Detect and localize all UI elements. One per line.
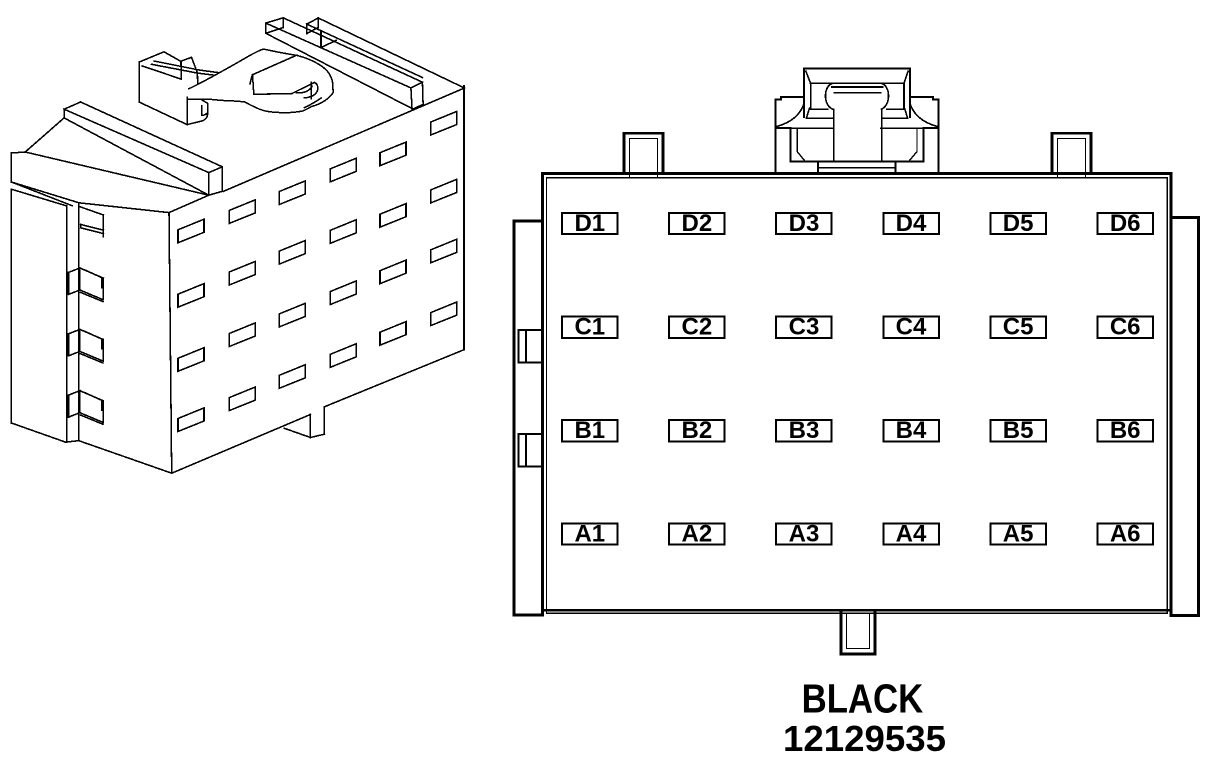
- svg-text:A5: A5: [1003, 521, 1034, 548]
- svg-text:A4: A4: [896, 521, 927, 548]
- svg-text:D5: D5: [1003, 210, 1034, 237]
- svg-text:D3: D3: [789, 210, 820, 237]
- svg-text:C5: C5: [1003, 314, 1034, 341]
- svg-text:BLACK: BLACK: [802, 675, 924, 721]
- svg-text:D1: D1: [574, 210, 605, 237]
- svg-text:12129535: 12129535: [783, 718, 946, 759]
- svg-text:C1: C1: [574, 314, 605, 341]
- svg-text:A3: A3: [789, 521, 820, 548]
- svg-text:D2: D2: [682, 210, 713, 237]
- svg-text:D4: D4: [896, 210, 927, 237]
- svg-text:C6: C6: [1110, 314, 1141, 341]
- svg-text:C3: C3: [789, 314, 820, 341]
- svg-text:B1: B1: [574, 417, 605, 444]
- svg-text:A2: A2: [682, 521, 713, 548]
- svg-text:D6: D6: [1110, 210, 1141, 237]
- svg-text:B3: B3: [789, 417, 820, 444]
- svg-text:B4: B4: [896, 417, 927, 444]
- svg-text:C4: C4: [896, 314, 927, 341]
- svg-text:B2: B2: [682, 417, 713, 444]
- svg-text:A6: A6: [1110, 521, 1141, 548]
- svg-text:A1: A1: [574, 521, 605, 548]
- svg-text:B6: B6: [1110, 417, 1141, 444]
- svg-text:B5: B5: [1003, 417, 1034, 444]
- svg-text:C2: C2: [682, 314, 713, 341]
